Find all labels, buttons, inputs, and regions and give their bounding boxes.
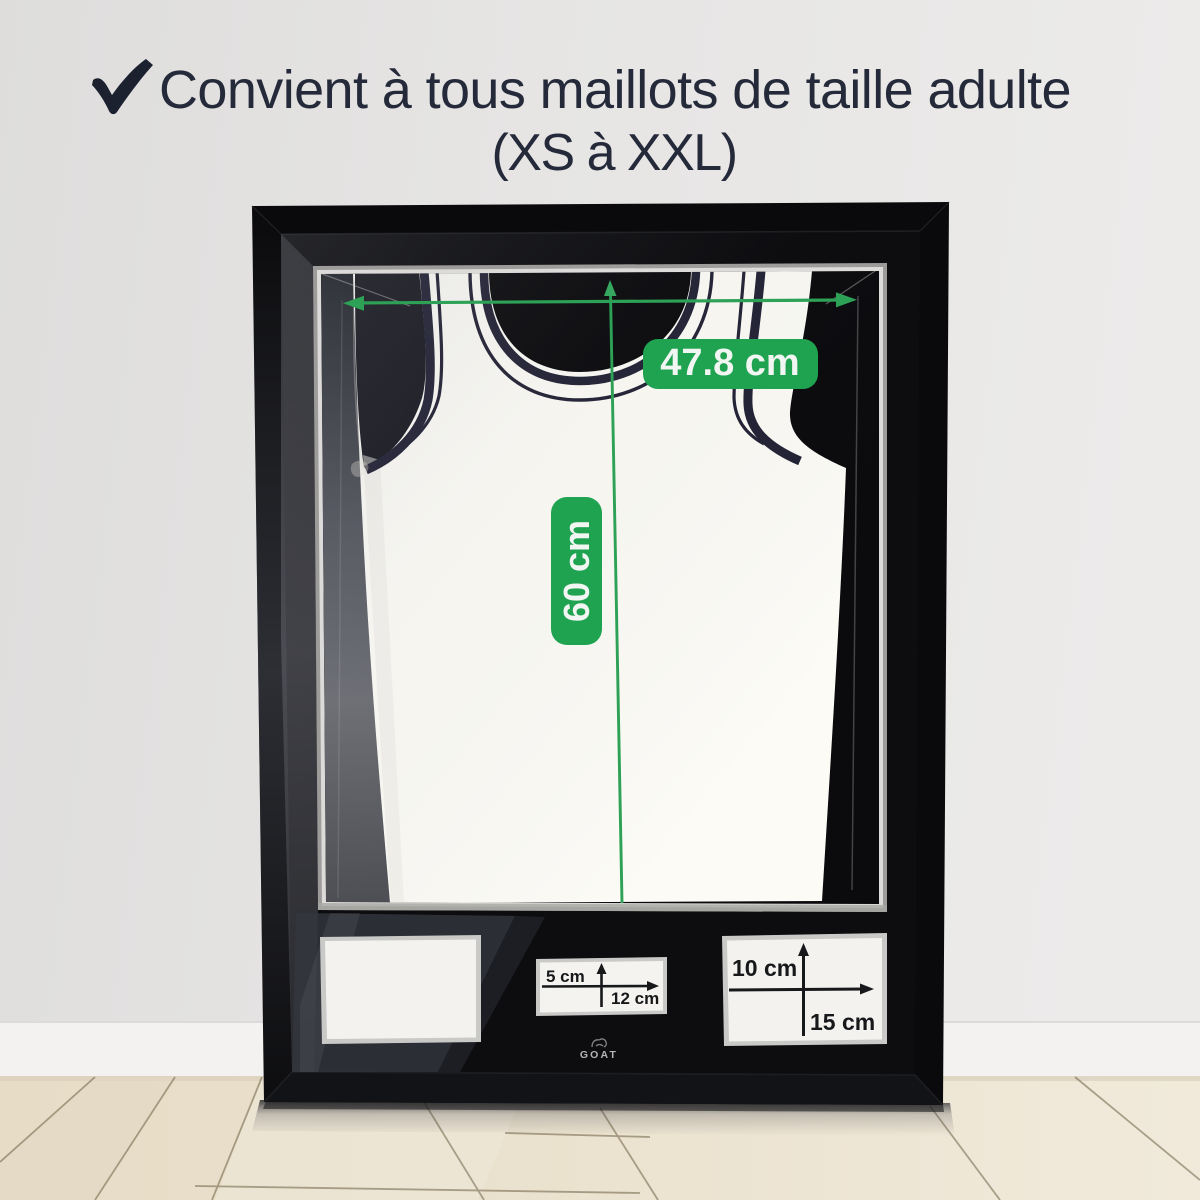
svg-text:10 cm: 10 cm bbox=[732, 955, 797, 981]
svg-text:GOAT: GOAT bbox=[580, 1049, 618, 1061]
svg-text:5 cm: 5 cm bbox=[546, 967, 585, 986]
svg-text:15 cm: 15 cm bbox=[810, 1009, 875, 1035]
svg-text:47.8 cm: 47.8 cm bbox=[660, 342, 799, 384]
svg-text:12 cm: 12 cm bbox=[611, 989, 659, 1008]
svg-text:Convient à tous maillots de ta: Convient à tous maillots de taille adult… bbox=[159, 60, 1071, 120]
svg-text:(XS à XXL): (XS à XXL) bbox=[491, 124, 736, 182]
svg-text:60 cm: 60 cm bbox=[556, 520, 597, 622]
